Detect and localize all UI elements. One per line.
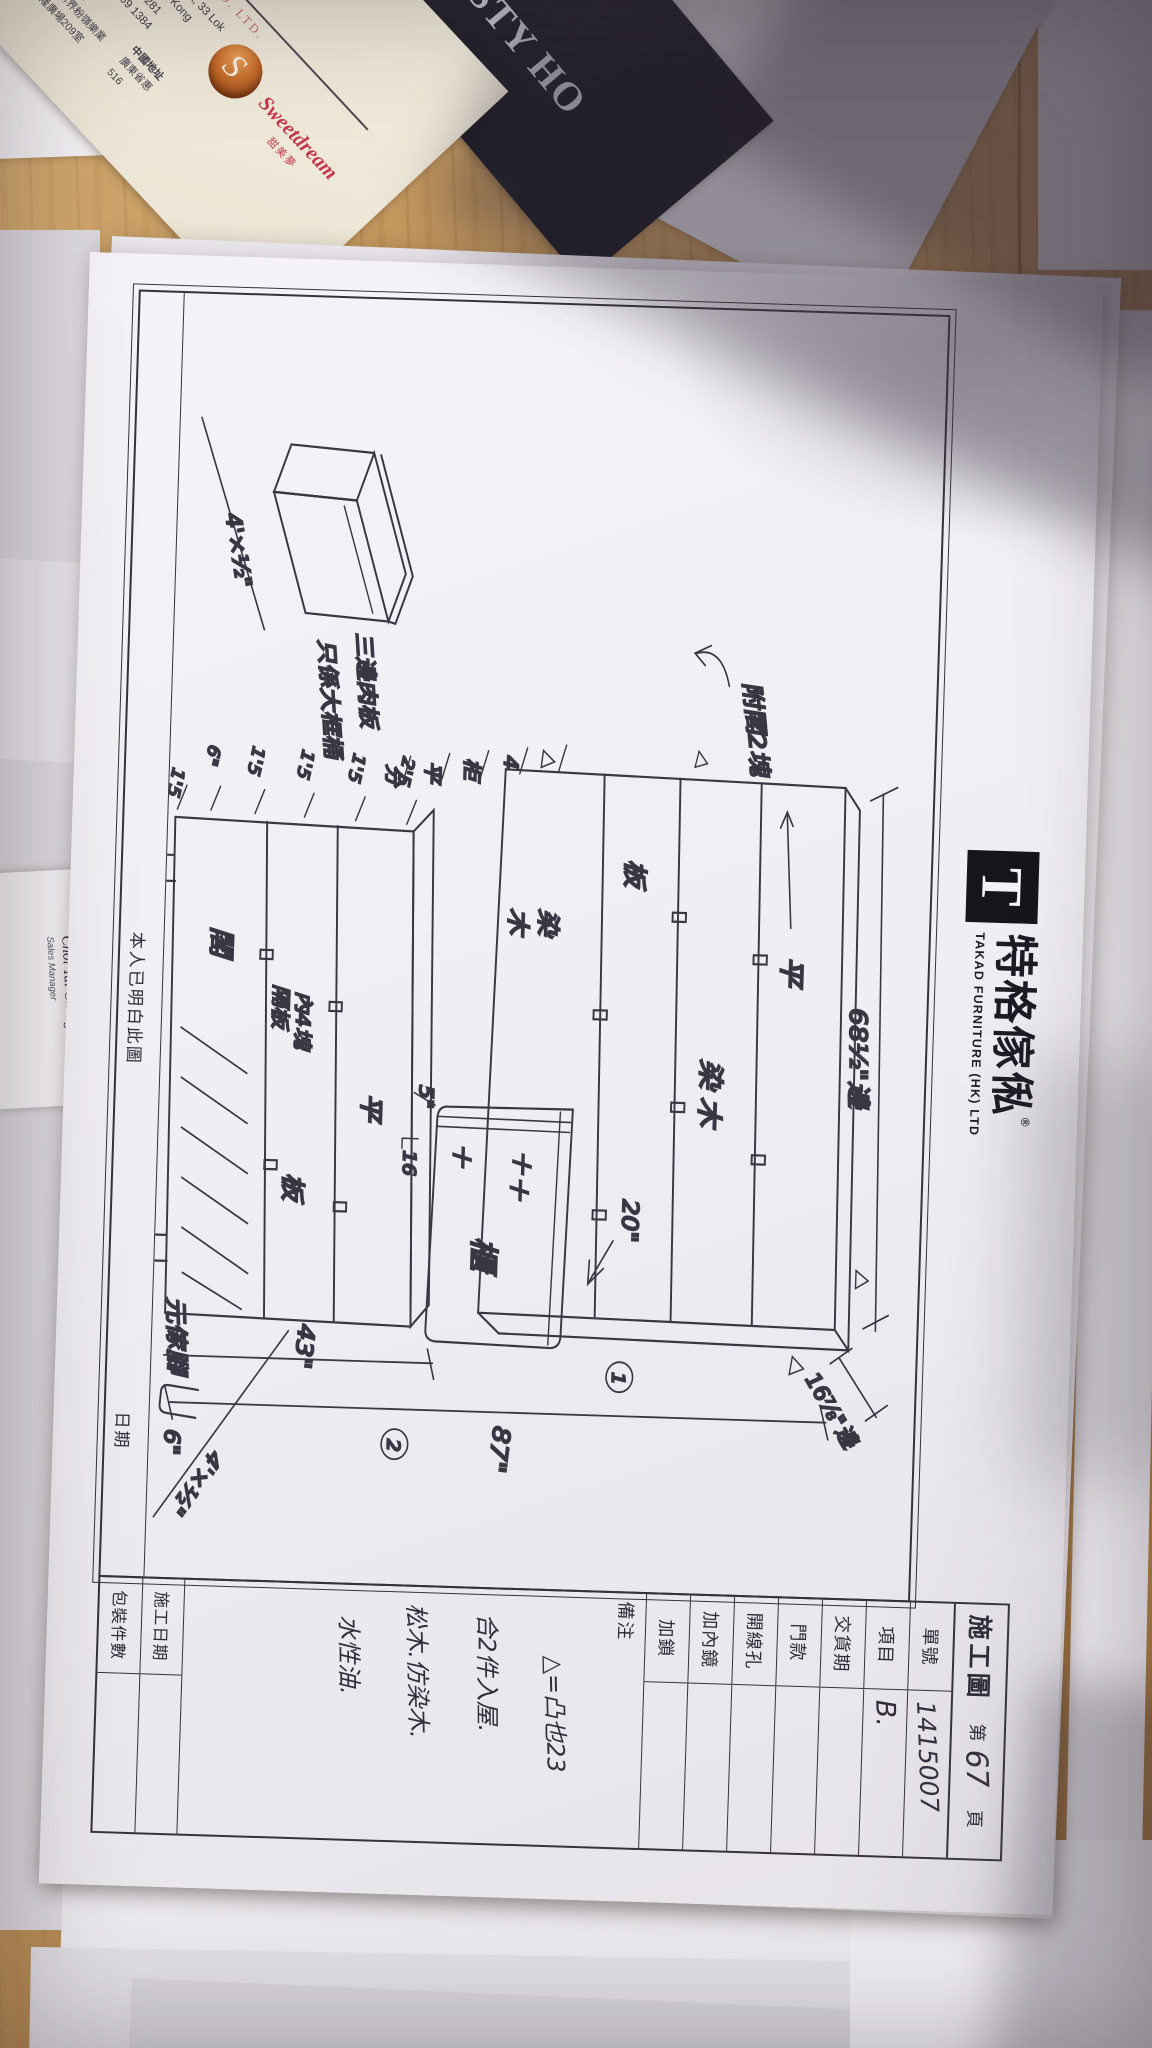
wardrobe-bottom-label-2: 木	[503, 907, 532, 938]
sheet-rotated-content: T 特格傢俬® TAKAD FURNITURE (HK) LTD 施工圖 第 6…	[51, 262, 1091, 1900]
wardrobe-shelf3-label: 板	[619, 859, 649, 892]
info-label-1: 項目	[864, 1601, 910, 1690]
circled-1-text: 1	[607, 1372, 628, 1385]
dresser-cross-1: 十	[510, 1151, 533, 1176]
info-row-lock: 加鎖	[638, 1594, 690, 1849]
note-foot: 元傢腳	[162, 1296, 192, 1379]
drawing-frame: 68½"邊 16⅞"邊 平 染木 板 染	[98, 290, 950, 1603]
note-attic: 附閣2塊	[738, 680, 774, 781]
chest-row1-label: 平	[355, 1093, 385, 1125]
dresser-label: 櫃	[465, 1236, 502, 1276]
takad-logo-cn-text: 特格傢俬	[985, 933, 1040, 1118]
chest-inner2-label: 隔板	[268, 984, 292, 1032]
dim-recess-arrow	[588, 1240, 613, 1285]
remark-line-2: 松木.仿染木.	[401, 1603, 441, 1834]
title-block-column: 施工圖 第 67 頁 單號 1415007 項目 B. 交貨期	[90, 1575, 1010, 1862]
info-label-4: 開線孔	[732, 1597, 778, 1686]
wardrobe-outline	[477, 769, 866, 1350]
edge-tick-1: 1'5	[343, 751, 368, 785]
remark-line-1: 合2件入屋.	[472, 1613, 508, 1835]
wardrobe-bottom-label-1: 染	[533, 908, 562, 939]
spacing-mark-2: 平	[421, 761, 444, 786]
dresser-cross-3: 十	[450, 1144, 473, 1169]
takad-logo-reg: ®	[1018, 1118, 1032, 1129]
spacing-mark-1: 柜	[460, 758, 483, 784]
edge-tick-3: 1'5	[243, 744, 268, 778]
sweetdream-logo-s: S	[214, 48, 253, 86]
dim-recess-label: 20"	[616, 1199, 644, 1243]
dim-panel-bottom: 4'×½"	[164, 1444, 226, 1520]
chest-outline	[160, 802, 445, 1327]
circled-2-text: 2	[382, 1439, 403, 1452]
date-label: 日期	[110, 1411, 136, 1450]
info-row-delivery: 交貨期	[814, 1600, 866, 1855]
shelf1-arrow	[778, 812, 795, 928]
dim-height-87-label: 87"	[482, 1424, 516, 1475]
info-label-6: 加鎖	[644, 1594, 690, 1683]
photo-of-construction-drawing: 乂慢線 279548 慢線 279548 地下2 號舖 187-191號 二座商…	[0, 0, 1152, 2048]
dim-16-label: 16	[398, 1150, 419, 1176]
schedule-label-0: 施工日期	[140, 1578, 184, 1675]
schedule-label-1: 包裝件數	[97, 1577, 142, 1674]
dresser-cross-2: 十	[507, 1177, 530, 1202]
page-prefix: 第	[965, 1723, 992, 1742]
takad-logo-en: TAKAD FURNITURE (HK) LTD	[967, 932, 987, 1136]
remark-line-3: 水性油.	[334, 1615, 370, 1831]
info-row-wire-hole: 開線孔	[726, 1597, 778, 1852]
sheet-title: 施工圖	[961, 1614, 1000, 1702]
chest-row3-label: 閣	[205, 926, 237, 961]
under-paper-top-right	[1038, 0, 1152, 270]
dresser-box	[425, 1105, 573, 1348]
takad-logo-cn: 特格傢俬®	[987, 933, 1037, 1138]
schedule-row-packing: 包裝件數	[92, 1577, 142, 1832]
sheet-title-row: 施工圖 第 67 頁	[946, 1604, 1008, 1860]
under-paper-left-corner	[0, 557, 85, 762]
spacing-mark-0: 4	[499, 755, 522, 770]
remark-line-0: △=凸也23	[538, 1655, 577, 1838]
dim-side-depth-label: 16⅞"邊	[800, 1368, 861, 1455]
dim-panel-top: 4'×½"	[220, 511, 256, 591]
remarks-box: 備注 △=凸也23 合2件入屋. 松木.仿染木. 水性油.	[176, 1580, 646, 1848]
info-label-0: 單號	[908, 1602, 954, 1691]
shoe-slat-hatching	[172, 1027, 255, 1309]
wardrobe-shelf2-label: 染木	[693, 1058, 726, 1135]
sweetdream-hk-address: 香港地址 香港新界粉嶺樂業 豐隆廣場209室	[28, 0, 121, 57]
sweetdream-cn-address: 中國地址 廣東省惠 516	[103, 43, 167, 107]
takad-logo-icon: T	[965, 850, 1039, 924]
dim-height-43-label: 43"	[289, 1322, 321, 1370]
dim-foot-height: 6"	[159, 1429, 184, 1456]
remarks-label: 備注	[615, 1601, 636, 1642]
edge-tick-2: 1'5	[292, 748, 317, 782]
info-label-2: 交貨期	[820, 1600, 866, 1689]
takad-logo-text: 特格傢俬® TAKAD FURNITURE (HK) LTD	[967, 932, 1037, 1138]
chest-row2-label: 板	[277, 1172, 307, 1205]
wardrobe-shelf1-label: 平	[775, 956, 807, 990]
acknowledgement-statement: 本人已明白此圖	[122, 931, 151, 1065]
construction-drawing-sheet: T 特格傢俬® TAKAD FURNITURE (HK) LTD 施工圖 第 6…	[39, 252, 1104, 1915]
chest-inner1-label: 內4塊	[291, 991, 315, 1052]
attic-arrow	[692, 645, 731, 768]
info-row-inner-mirror: 加內鏡	[682, 1596, 734, 1851]
edge-tick-4: 6"	[200, 743, 224, 768]
note-small-box-1: 三邊肉板	[351, 631, 381, 732]
dim-16-bracket	[402, 1138, 418, 1148]
info-value-0: 1415007	[911, 1701, 944, 1813]
small-box-sketch	[270, 444, 417, 624]
dim-gap-label: 5"	[414, 1085, 437, 1110]
info-label-3: 門款	[776, 1598, 822, 1687]
dim-top-width-label: 68½"邊	[844, 1008, 872, 1110]
info-value-1: B.	[869, 1699, 901, 1727]
note-small-box-2: 只係大框桶	[313, 638, 345, 762]
info-row-order-no: 單號 1415007	[902, 1602, 954, 1857]
info-row-door-style: 門款	[770, 1598, 822, 1853]
spacing-mark-3: 分	[382, 763, 405, 788]
page-number: 67	[959, 1749, 995, 1789]
page-suffix: 頁	[962, 1809, 989, 1828]
furniture-sketch: 68½"邊 16⅞"邊 平 染木 板 染	[144, 297, 944, 1598]
info-label-5: 加內鏡	[688, 1596, 734, 1685]
takad-logo-block: T 特格傢俬® TAKAD FURNITURE (HK) LTD	[959, 850, 1040, 1138]
info-row-item: 項目 B.	[858, 1601, 910, 1856]
